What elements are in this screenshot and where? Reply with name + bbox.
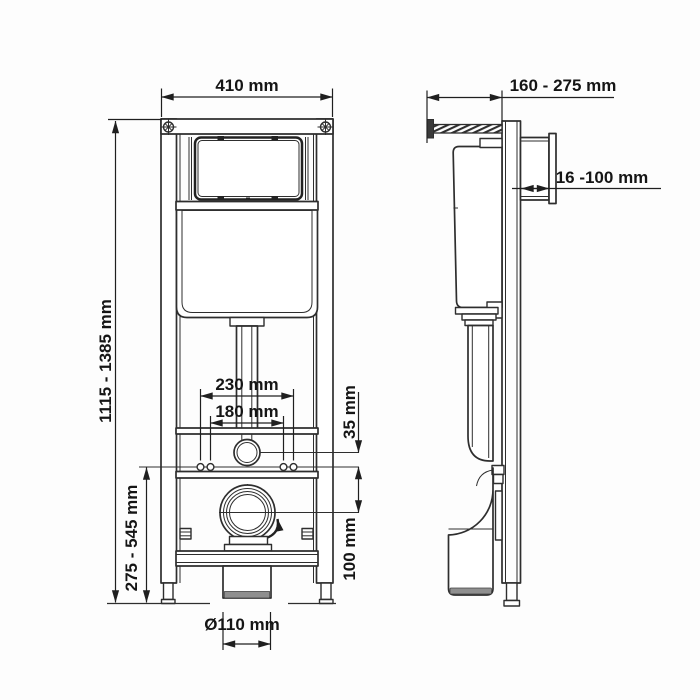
dim-drain-height: 275 - 545 mm [122, 468, 147, 603]
cistern-tank [177, 205, 318, 318]
dim-label-supply-offset: 35 mm [340, 385, 359, 439]
lower-crossbar [176, 472, 318, 479]
dim-label-plate-recess: 16 -100 mm [556, 168, 649, 187]
flush-plate-window [189, 136, 308, 201]
dim-label-drain-diameter: Ø110 mm [204, 615, 280, 634]
dim-label-drain-height: 275 - 545 mm [122, 485, 141, 592]
dim-label-install-depth: 160 - 275 mm [510, 76, 617, 95]
dim-label-drain-offset: 100 mm [340, 517, 359, 580]
cistern-side-profile [453, 139, 502, 326]
water-supply-connector [234, 440, 260, 466]
rail-clip-icon [180, 529, 191, 540]
frame-feet [107, 583, 336, 604]
dim-drain-diameter: Ø110 mm [204, 612, 280, 650]
drain-bracket [230, 537, 268, 545]
rail-clip-icon [302, 529, 313, 540]
outlet-pipe [223, 566, 271, 598]
drain-elbow-outlet [449, 466, 505, 596]
dim-supply-offset: 35 mm [340, 385, 359, 512]
front-view [107, 119, 359, 604]
dim-label-fixing-inner: 180 mm [215, 402, 278, 421]
wall-rail [502, 121, 521, 606]
drain-connector [219, 484, 359, 542]
side-view [427, 120, 556, 607]
wc-frame-technical-drawing: 410 mm 1115 - 1385 mm 230 mm 180 mm 35 m… [0, 0, 700, 700]
drain-bracket [225, 545, 272, 552]
upper-crossbar [176, 202, 318, 211]
middle-crossbar [176, 428, 318, 434]
dim-frame-width: 410 mm [162, 76, 333, 117]
dim-label-frame-height: 1115 - 1385 mm [96, 299, 115, 423]
flush-pipe-side [468, 326, 493, 462]
dim-label-fixing-outer: 230 mm [215, 375, 278, 394]
dim-label-frame-width: 410 mm [215, 76, 278, 95]
flush-plate-housing [521, 134, 557, 204]
dim-drain-offset: 100 mm [340, 517, 359, 580]
wall-anchor-rod [427, 120, 502, 139]
bottom-crossbar [176, 551, 318, 566]
